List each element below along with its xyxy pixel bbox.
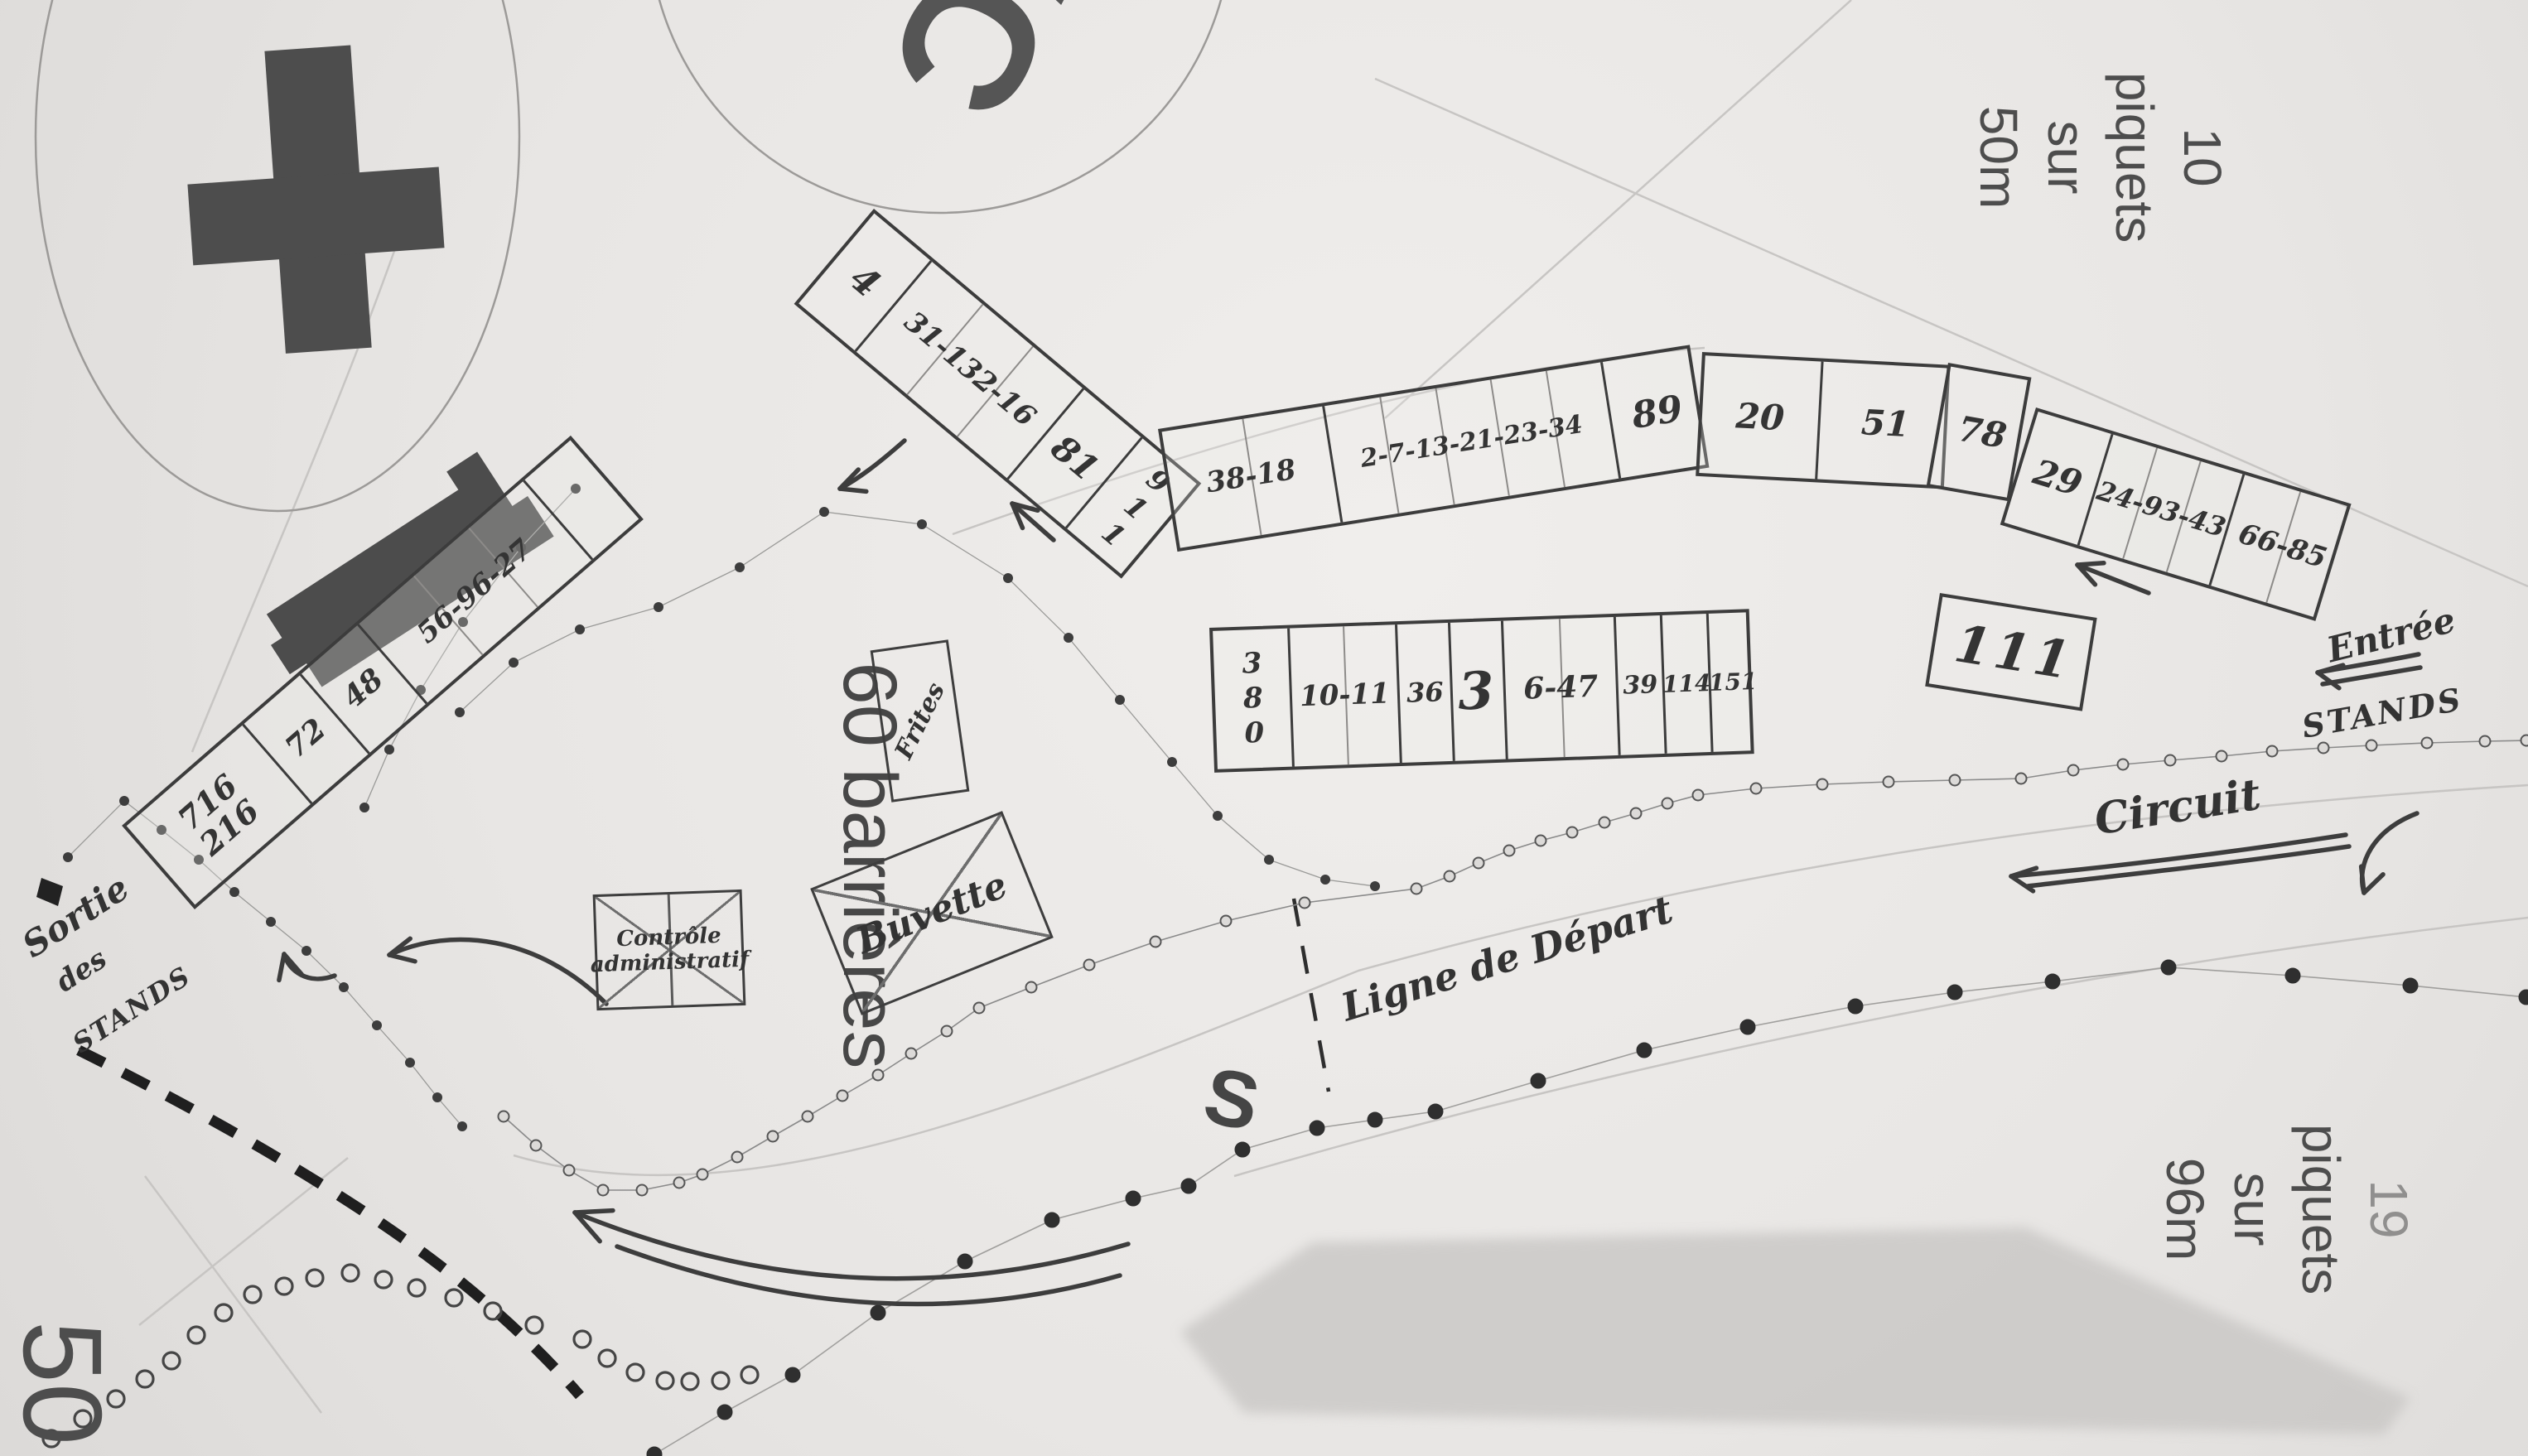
arrowhead [2077,563,2104,565]
piquet-dot [1884,777,1894,788]
piquet-dot [803,1111,813,1122]
controle-administratif-stand: Contrôle administratif [593,890,746,1010]
paddock-plan: WC 10 piquets sur 50m 19 piquets sur 96m… [0,0,2528,1456]
stand-cell-label: 151 [1709,612,1758,752]
note-line: sur [2033,12,2101,302]
piquet-dot [385,745,394,755]
piquet-dot [1026,982,1037,993]
paddock-hook-arrow [279,954,335,980]
piquet-dot [1084,960,1095,971]
stand-cell-group: 38-18 [1162,407,1341,548]
piquet-dot [2118,759,2129,770]
piquet-dot [682,1373,698,1390]
buvette-label: Buvette [851,864,1014,962]
piquet-dot [342,1265,359,1281]
piquet-dot [446,1290,462,1306]
piquet-dot [785,1367,800,1382]
piquet-dot [433,1093,442,1102]
arrowhead [2364,875,2383,893]
striped-barrier [79,1050,580,1396]
piquet-dot [1693,790,1704,801]
piquet-dot [958,1254,972,1269]
piquet-dot [2016,774,2027,784]
piquet-dot [1428,1104,1443,1119]
piquet-dot [654,603,663,612]
stand-cell-label: 36 [1397,623,1453,763]
piquet-dot [360,803,369,812]
piquet-dot [1599,817,1610,828]
stand-cell-label: 20 [1699,355,1821,479]
stand-cell-group: 3 [1448,621,1506,761]
stand-cell-group: 114 [1660,614,1711,754]
stand-cell-label: 6-47 [1503,617,1619,759]
note-10-piquets: 10 piquets sur 50m [1963,12,2236,302]
piquet-dot [267,918,276,927]
piquet-dot [1531,1073,1546,1088]
piquet-dot [1213,812,1223,821]
piquet-dot [736,563,745,572]
piquet-dot [1950,775,1961,786]
piquet-dot [456,708,465,717]
controle-label-line2: administratif [590,947,749,978]
piquet-dot [230,888,239,897]
piquet-dot [2267,746,2278,757]
piquet-dot [1064,634,1073,643]
piquet-dot [627,1364,644,1381]
track-swoosh-arrow-2 [617,1246,1120,1304]
circuit-arrow-2 [2028,846,2349,886]
piquet-dot [306,1270,323,1286]
piquet-dot [2068,765,2079,776]
piquet-dot [137,1371,153,1387]
piquet-dot [2161,960,2176,975]
arrowhead [389,955,415,962]
sortie-loop-arrow [389,938,606,1004]
note-line: piquets [2287,1064,2355,1354]
note-19-piquets: 19 piquets sur 96m [2149,1064,2423,1354]
piquet-dot [1848,999,1863,1014]
arrowhead [2362,866,2364,893]
note-line: 19 [2355,1064,2423,1354]
piquet-dot [531,1140,542,1151]
stand-cell-label: 3 [1450,621,1506,761]
note-line: piquets [2101,12,2169,302]
piquet-dot [974,1003,985,1014]
piquet-dot [1044,1213,1059,1227]
piquet-dot [526,1317,543,1333]
arrowhead [575,1211,613,1213]
medical-cross-icon [179,40,451,359]
note-line: 50m [1965,12,2033,302]
piquet-dot [373,1021,382,1030]
piquet-dot [64,853,73,862]
stand-strip-second-row: 38010-113636-4739114151 [1209,609,1754,773]
piquet-dot [1631,808,1642,819]
piquet-dot [1504,846,1515,856]
piquet-dot [1751,783,1762,794]
piquet-dot [1445,871,1455,882]
piquet-dot [1310,1121,1324,1135]
frites-label: Frites [889,678,950,764]
piquet-dot [2519,990,2528,1005]
stand-cell-label: 39 [1616,615,1665,755]
arrowhead [279,954,284,980]
piquet-dot [637,1185,648,1196]
piquet-dot [1474,858,1484,869]
piquet-dot [406,1058,415,1068]
piquet-dot [499,1111,509,1122]
piquet-dot [276,1278,292,1294]
arrowhead [840,489,866,491]
piquet-dot [2521,735,2528,746]
stand-cell-label: 380 [1213,629,1292,769]
piquet-dot [1116,696,1125,705]
note-line: sur [2219,1064,2287,1354]
piquet-dot [1221,916,1232,927]
piquet-dot [712,1372,729,1389]
piquet-dot [1168,758,1177,767]
piquet-dot [215,1304,232,1321]
piquet-dot [599,1350,615,1367]
piquet-dot [2285,968,2300,983]
piquet-dot [408,1280,425,1296]
piquet-dot [2480,736,2491,747]
piquet-dot [574,1331,591,1348]
piquet-dot [340,983,349,992]
piquet-dot [2165,755,2176,766]
piquet-dot [302,947,311,956]
piquet-dot [1368,1112,1382,1127]
piquet-dot [1004,574,1013,583]
piquet-dot [2366,740,2377,751]
piquet-dot [2318,743,2329,754]
piquet-dot [1151,937,1161,947]
piquet-dot [564,1165,575,1176]
piquet-dot [375,1271,392,1288]
stand-strip-top-row-mid2: 2051 [1696,352,1950,489]
flow-arrow-row1-left [840,441,905,491]
piquet-dot [2422,738,2433,749]
flow-arrow-row1-right [2077,563,2149,593]
piquet-dot [509,658,519,668]
piquet-dot [1662,798,1673,809]
stand-cell-group: 36 [1395,623,1453,763]
stand-cell-label: 10-11 [1290,624,1400,766]
note-line: 96m [2151,1064,2219,1354]
stand-cell-group: 6-47 [1501,617,1619,759]
piquet-dot [1637,1043,1652,1058]
piquet-dot [2403,978,2418,993]
corner-number-label: 50 [0,1296,124,1456]
piquet-dot [1740,1020,1755,1034]
stand-cell-group: 89 [1600,348,1712,479]
piquet-dot [768,1131,779,1142]
piquet-dot [120,797,129,806]
controle-label-line1: Contrôle [616,923,721,952]
piquet-dot [2045,974,2060,989]
piquet-dot [1265,856,1274,865]
stand-cell-label: 114 [1662,614,1711,754]
piquet-dot [674,1178,685,1188]
piquet-dot [485,1303,501,1319]
piquet-dot [598,1185,609,1196]
piquet-dot [1567,827,1578,838]
piquet-dot [647,1447,662,1456]
piquet-dot [918,520,927,529]
stand-cell-group: 10-11 [1287,624,1400,766]
piquet-dot [697,1169,708,1180]
note-line: 10 [2169,12,2236,302]
piquet-dot [717,1405,732,1420]
piquet-dot [1126,1191,1141,1206]
piquet-dot [1817,779,1828,790]
piquet-dot [1947,985,1962,1000]
piquet-dot [1371,882,1380,891]
piquet-dot [163,1352,180,1369]
piquet-dot [1321,875,1330,885]
piquet-dot [741,1367,758,1383]
piquet-dot [657,1372,673,1389]
piquet-dot [820,508,829,517]
piquet-dot [576,625,585,634]
piquet-dot [871,1305,885,1320]
piquet-dot [458,1122,467,1131]
piquet-dot [244,1286,261,1303]
circuit-hook-arrow [2362,813,2417,893]
stand-cell-label: 38-18 [1162,407,1341,548]
stand-cell-group: 151 [1706,612,1758,752]
piquet-dot [1536,836,1546,846]
piquet-dot [188,1327,205,1343]
stand-cell-group: 380 [1213,629,1292,769]
stand-cell-label: 89 [1603,348,1712,479]
open-circle-piquets [43,1265,758,1447]
piquet-dot [1181,1179,1196,1193]
stand-cell-group: 39 [1614,615,1665,755]
piquet-dot [1411,884,1422,894]
stand-cell-group: 20 [1699,355,1821,479]
piquet-dot [2217,751,2227,762]
piquet-dot [732,1152,743,1163]
piquet-dot [1300,898,1310,909]
